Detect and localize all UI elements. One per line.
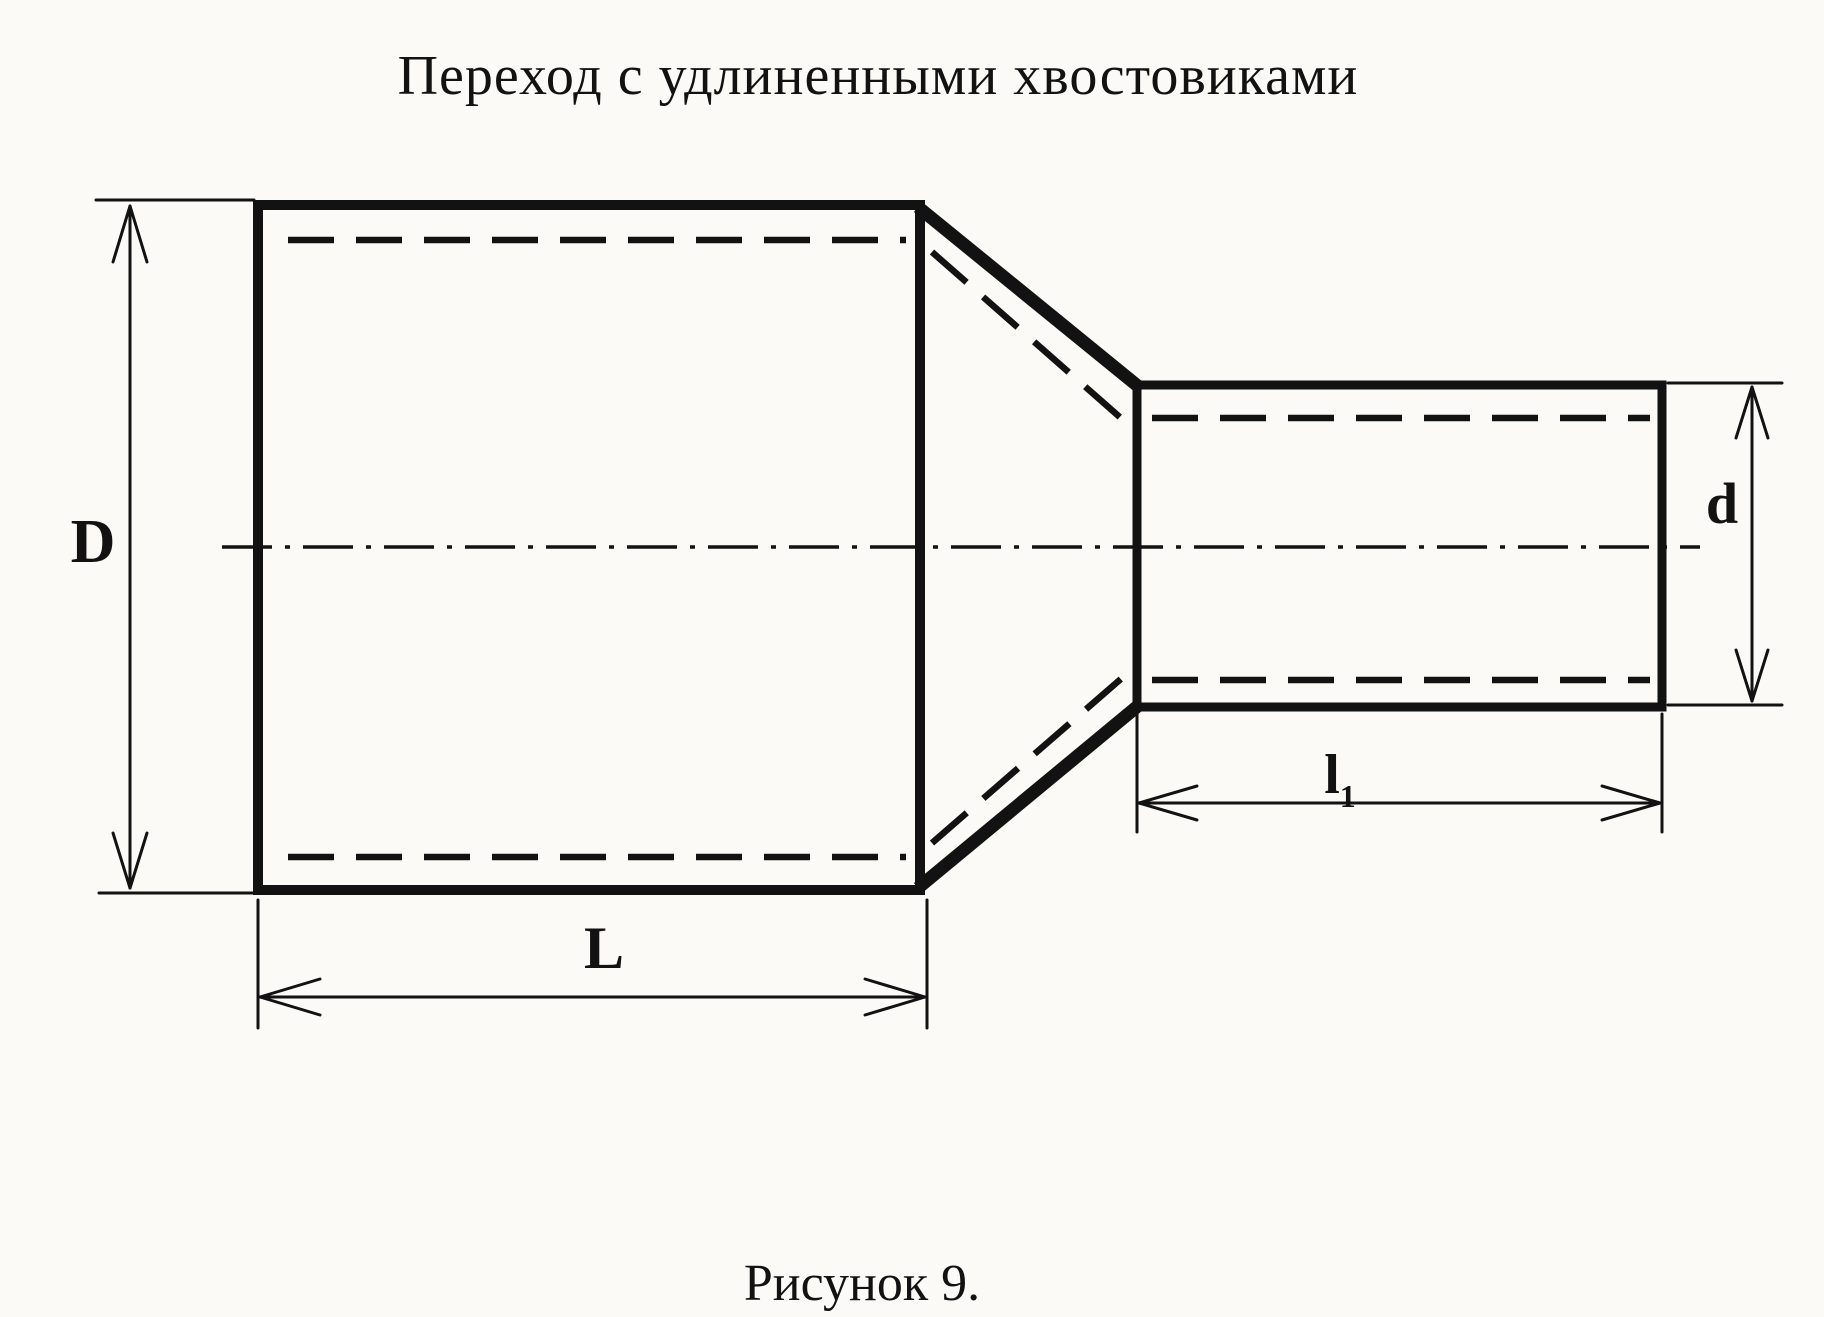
technical-drawing: Переход с удлиненными хвостовиками: [0, 0, 1824, 1317]
dim-label-L: L: [584, 915, 624, 981]
scanned-drawing-page: Переход с удлиненными хвостовиками: [0, 0, 1824, 1317]
cone-inner-wall-bottom: [932, 678, 1122, 843]
dim-label-l1-base: l: [1324, 744, 1340, 806]
cone-inner-wall-top: [932, 252, 1122, 419]
dimension-L: L: [258, 900, 927, 1028]
cone-bottom-edge: [918, 705, 1139, 888]
drawing-title: Переход с удлиненными хвостовиками: [398, 45, 1359, 107]
cone-top-edge: [918, 207, 1139, 387]
dimension-l1: l1: [1137, 714, 1662, 832]
dim-label-l1: l1: [1324, 744, 1356, 814]
dim-label-d: d: [1706, 471, 1738, 536]
dim-label-D: D: [71, 508, 116, 576]
reducer-outline: [222, 205, 1700, 890]
dim-label-l1-subscript: 1: [1340, 778, 1356, 814]
dimension-d: d: [1668, 383, 1782, 705]
figure-caption: Рисунок 9.: [744, 1255, 980, 1312]
